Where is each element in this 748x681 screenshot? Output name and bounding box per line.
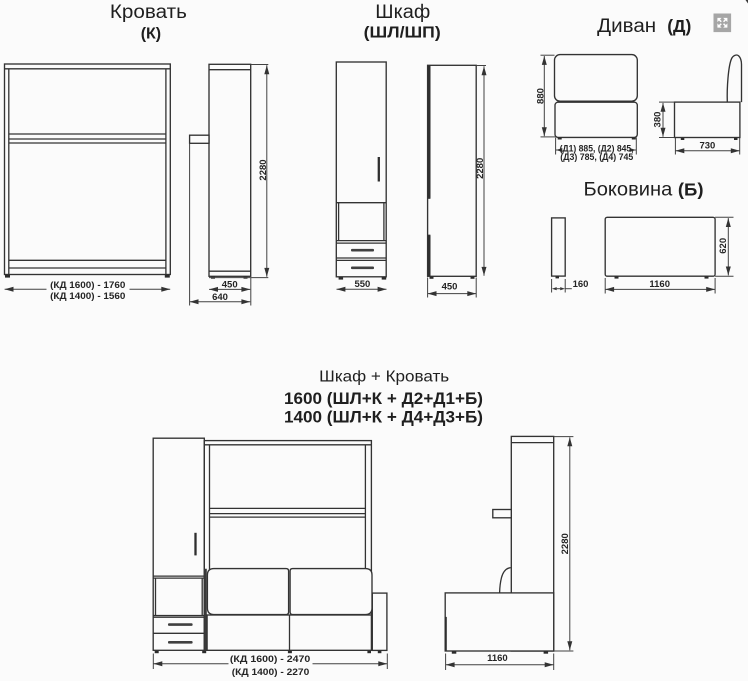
svg-text:1400 (ШЛ+К + Д4+Д3+Б): 1400 (ШЛ+К + Д4+Д3+Б) [284,408,483,427]
svg-text:620: 620 [718,238,729,254]
svg-text:(К): (К) [141,25,161,42]
svg-text:2280: 2280 [560,533,571,554]
svg-text:880: 880 [536,88,547,104]
svg-text:450: 450 [442,281,458,292]
svg-text:1160: 1160 [487,653,508,664]
svg-text:(Д3) 785, (Д4) 745: (Д3) 785, (Д4) 745 [560,152,634,163]
svg-text:Боковина (Б): Боковина (Б) [584,179,704,200]
svg-text:(КД 1400) - 2270: (КД 1400) - 2270 [232,667,310,678]
svg-text:(КД 1600) - 1760: (КД 1600) - 1760 [50,280,125,291]
svg-text:1160: 1160 [649,279,670,290]
svg-text:Кровать: Кровать [110,2,187,23]
svg-text:Шкаф: Шкаф [375,2,430,23]
svg-text:2280: 2280 [258,159,269,180]
svg-text:640: 640 [212,292,228,303]
svg-text:1600 (ШЛ+К + Д2+Д1+Б): 1600 (ШЛ+К + Д2+Д1+Б) [284,389,483,408]
svg-text:160: 160 [573,279,589,290]
svg-text:450: 450 [222,280,238,291]
svg-text:(КД 1600) - 2470: (КД 1600) - 2470 [230,654,310,665]
svg-text:380: 380 [653,112,664,128]
svg-text:Шкаф + Кровать: Шкаф + Кровать [319,368,449,385]
svg-text:Диван: Диван [597,16,656,37]
svg-text:(КД 1400) - 1560: (КД 1400) - 1560 [50,291,125,302]
svg-text:2280: 2280 [475,158,486,179]
svg-text:(Д): (Д) [667,16,691,36]
svg-text:730: 730 [699,141,715,152]
svg-text:550: 550 [354,279,370,290]
svg-text:(ШЛ/ШП): (ШЛ/ШП) [364,25,441,42]
